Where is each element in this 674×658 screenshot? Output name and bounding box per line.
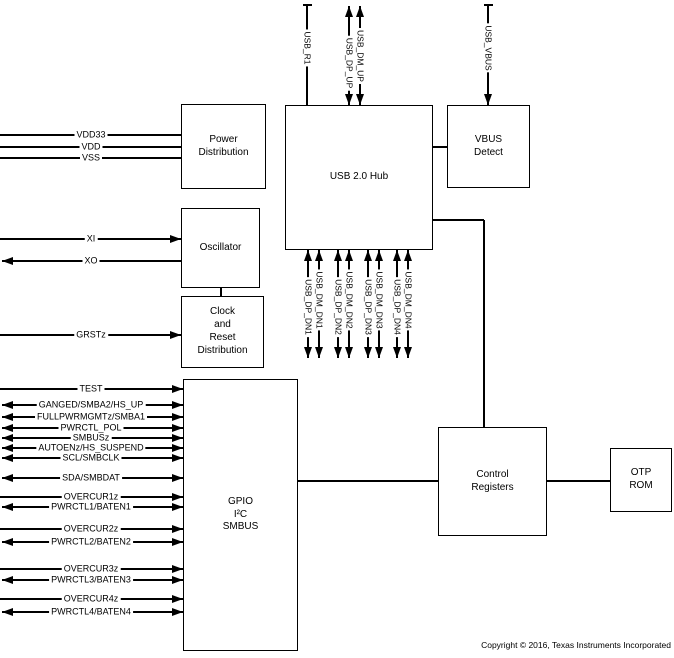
- block-label-otp-rom: OTP ROM: [629, 467, 652, 493]
- arrowhead-up-usb-dp-dn2: [334, 250, 342, 261]
- arrowhead-down-usb-dm-up: [356, 94, 364, 105]
- block-diagram-canvas: Power DistributionOscillatorClock and Re…: [0, 0, 674, 658]
- signal-label-overcur3z: OVERCUR3z: [62, 564, 121, 575]
- connector-hub-to-control-horizontal: [433, 219, 484, 221]
- block-oscillator: Oscillator: [181, 208, 260, 288]
- arrowhead-up-usb-dm-dn1: [315, 250, 323, 261]
- signal-label-usb-dm-dn1: USB_DM_DN1: [315, 269, 324, 330]
- arrowhead-down-usb-dp-dn3: [364, 347, 372, 358]
- signal-label-overcur2z: OVERCUR2z: [62, 524, 121, 535]
- block-clock-reset-distribution: Clock and Reset Distribution: [181, 296, 264, 368]
- signal-label-usb-dp-dn2: USB_DP_DN2: [334, 277, 343, 337]
- arrowhead-left-sda-smbdat: [2, 474, 13, 482]
- arrowhead-right-xi: [170, 235, 181, 243]
- arrowhead-up-usb-dm-dn4: [404, 250, 412, 261]
- arrowhead-left-scl-smbclk: [2, 454, 13, 462]
- connector-gpio-to-control: [298, 480, 438, 482]
- arrowhead-right-pwrctl2: [172, 538, 183, 546]
- signal-label-pwrctl1: PWRCTL1/BATEN1: [49, 502, 133, 513]
- arrowhead-left-pwrctl-pol: [2, 424, 13, 432]
- block-label-clock-reset-distribution: Clock and Reset Distribution: [197, 306, 247, 357]
- signal-label-fullpwrmgmtz: FULLPWRMGMTz/SMBA1: [35, 412, 147, 423]
- arrowhead-left-pwrctl4: [2, 608, 13, 616]
- arrowhead-right-sda-smbdat: [172, 474, 183, 482]
- signal-label-usb-dm-up: USB_DM_UP: [356, 28, 365, 84]
- signal-label-usb-r1: USB_R1: [303, 29, 312, 66]
- arrowhead-right-overcur1z: [172, 493, 183, 501]
- connector-hub-to-vbus-detect: [433, 146, 447, 148]
- signal-label-usb-dm-dn3: USB_DM_DN3: [375, 269, 384, 330]
- signal-label-usb-dm-dn2: USB_DM_DN2: [345, 269, 354, 330]
- signal-label-xo: XO: [82, 256, 99, 267]
- block-control-registers: Control Registers: [438, 427, 547, 536]
- block-label-control-registers: Control Registers: [471, 469, 513, 495]
- block-label-usb-hub: USB 2.0 Hub: [330, 171, 388, 184]
- arrowhead-down-usb-dp-dn1: [304, 347, 312, 358]
- block-usb-hub: USB 2.0 Hub: [285, 105, 433, 250]
- arrowhead-up-usb-dm-up: [356, 6, 364, 17]
- connector-oscillator-to-clock: [220, 288, 222, 296]
- signal-label-sda-smbdat: SDA/SMBDAT: [60, 473, 122, 484]
- block-power-distribution: Power Distribution: [181, 104, 266, 189]
- arrowhead-right-overcur4z: [172, 595, 183, 603]
- arrowhead-left-ganged: [2, 401, 13, 409]
- signal-label-pwrctl3: PWRCTL3/BATEN3: [49, 575, 133, 586]
- arrowhead-up-usb-dp-up: [345, 6, 353, 17]
- arrowhead-left-autoenz: [2, 444, 13, 452]
- arrowhead-right-test: [172, 385, 183, 393]
- copyright-text: Copyright © 2016, Texas Instruments Inco…: [481, 641, 671, 650]
- signal-label-usb-vbus: USB_VBUS: [484, 23, 493, 72]
- arrowhead-right-fullpwrmgmtz: [172, 413, 183, 421]
- block-label-vbus-detect: VBUS Detect: [474, 134, 503, 160]
- arrowhead-down-usb-dm-dn4: [404, 347, 412, 358]
- arrowhead-down-usb-dm-dn3: [375, 347, 383, 358]
- arrowhead-right-overcur3z: [172, 565, 183, 573]
- signal-label-usb-dm-dn4: USB_DM_DN4: [404, 269, 413, 330]
- arrowhead-right-pwrctl1: [172, 503, 183, 511]
- arrowhead-down-usb-dm-dn2: [345, 347, 353, 358]
- connector-control-to-otp: [547, 480, 610, 482]
- signal-label-grstz: GRSTz: [74, 330, 108, 341]
- signal-label-vss: VSS: [80, 153, 102, 164]
- arrowhead-right-scl-smbclk: [172, 454, 183, 462]
- connector-hub-to-control-vertical: [483, 220, 485, 427]
- arrowhead-left-smbusz: [2, 434, 13, 442]
- arrowhead-left-pwrctl3: [2, 576, 13, 584]
- signal-label-ganged: GANGED/SMBA2/HS_UP: [37, 400, 146, 411]
- arrowhead-left-pwrctl2: [2, 538, 13, 546]
- arrowhead-down-usb-dm-dn1: [315, 347, 323, 358]
- arrowhead-left-xo: [2, 257, 13, 265]
- block-label-power-distribution: Power Distribution: [198, 134, 248, 160]
- arrowhead-right-pwrctl-pol: [172, 424, 183, 432]
- arrowhead-left-fullpwrmgmtz: [2, 413, 13, 421]
- signal-label-scl-smbclk: SCL/SMBCLK: [60, 453, 121, 464]
- offpage-tick-usb-vbus: [484, 4, 493, 6]
- arrowhead-right-pwrctl4: [172, 608, 183, 616]
- signal-label-pwrctl2: PWRCTL2/BATEN2: [49, 537, 133, 548]
- arrowhead-up-usb-dm-dn3: [375, 250, 383, 261]
- arrowhead-right-pwrctl3: [172, 576, 183, 584]
- arrowhead-right-grstz: [170, 331, 181, 339]
- signal-label-xi: XI: [85, 234, 98, 245]
- arrowhead-down-usb-dp-up: [345, 94, 353, 105]
- block-gpio-i2c-smbus: GPIO I²C SMBUS: [183, 379, 298, 651]
- signal-label-vdd: VDD: [79, 142, 102, 153]
- signal-label-overcur4z: OVERCUR4z: [62, 594, 121, 605]
- signal-label-usb-dp-dn1: USB_DP_DN1: [304, 277, 313, 337]
- arrowhead-right-smbusz: [172, 434, 183, 442]
- signal-label-usb-dp-dn3: USB_DP_DN3: [364, 277, 373, 337]
- arrowhead-up-usb-dp-dn3: [364, 250, 372, 261]
- arrowhead-left-pwrctl1: [2, 503, 13, 511]
- arrowhead-down-usb-dp-dn4: [393, 347, 401, 358]
- arrowhead-down-usb-vbus: [484, 94, 492, 105]
- block-vbus-detect: VBUS Detect: [447, 105, 530, 188]
- block-label-oscillator: Oscillator: [200, 242, 242, 255]
- signal-label-vdd33: VDD33: [74, 130, 107, 141]
- offpage-tick-usb-r1: [303, 4, 312, 6]
- signal-label-usb-dp-up: USB_DP_UP: [345, 36, 354, 91]
- block-otp-rom: OTP ROM: [610, 448, 672, 512]
- arrowhead-right-ganged: [172, 401, 183, 409]
- signal-label-test: TEST: [77, 384, 104, 395]
- block-label-gpio-i2c-smbus: GPIO I²C SMBUS: [223, 496, 259, 534]
- arrowhead-right-autoenz: [172, 444, 183, 452]
- arrowhead-down-usb-dp-dn2: [334, 347, 342, 358]
- arrowhead-up-usb-dm-dn2: [345, 250, 353, 261]
- arrowhead-up-usb-dp-dn1: [304, 250, 312, 261]
- arrowhead-up-usb-dp-dn4: [393, 250, 401, 261]
- signal-label-usb-dp-dn4: USB_DP_DN4: [393, 277, 402, 337]
- arrowhead-right-overcur2z: [172, 525, 183, 533]
- signal-label-pwrctl4: PWRCTL4/BATEN4: [49, 607, 133, 618]
